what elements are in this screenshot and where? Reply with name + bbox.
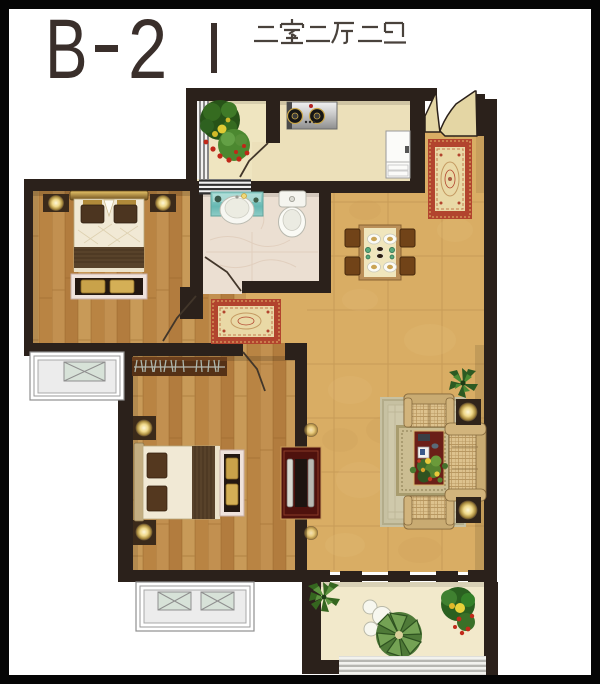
svg-text:B: B	[45, 1, 88, 96]
svg-text:2: 2	[128, 3, 167, 96]
